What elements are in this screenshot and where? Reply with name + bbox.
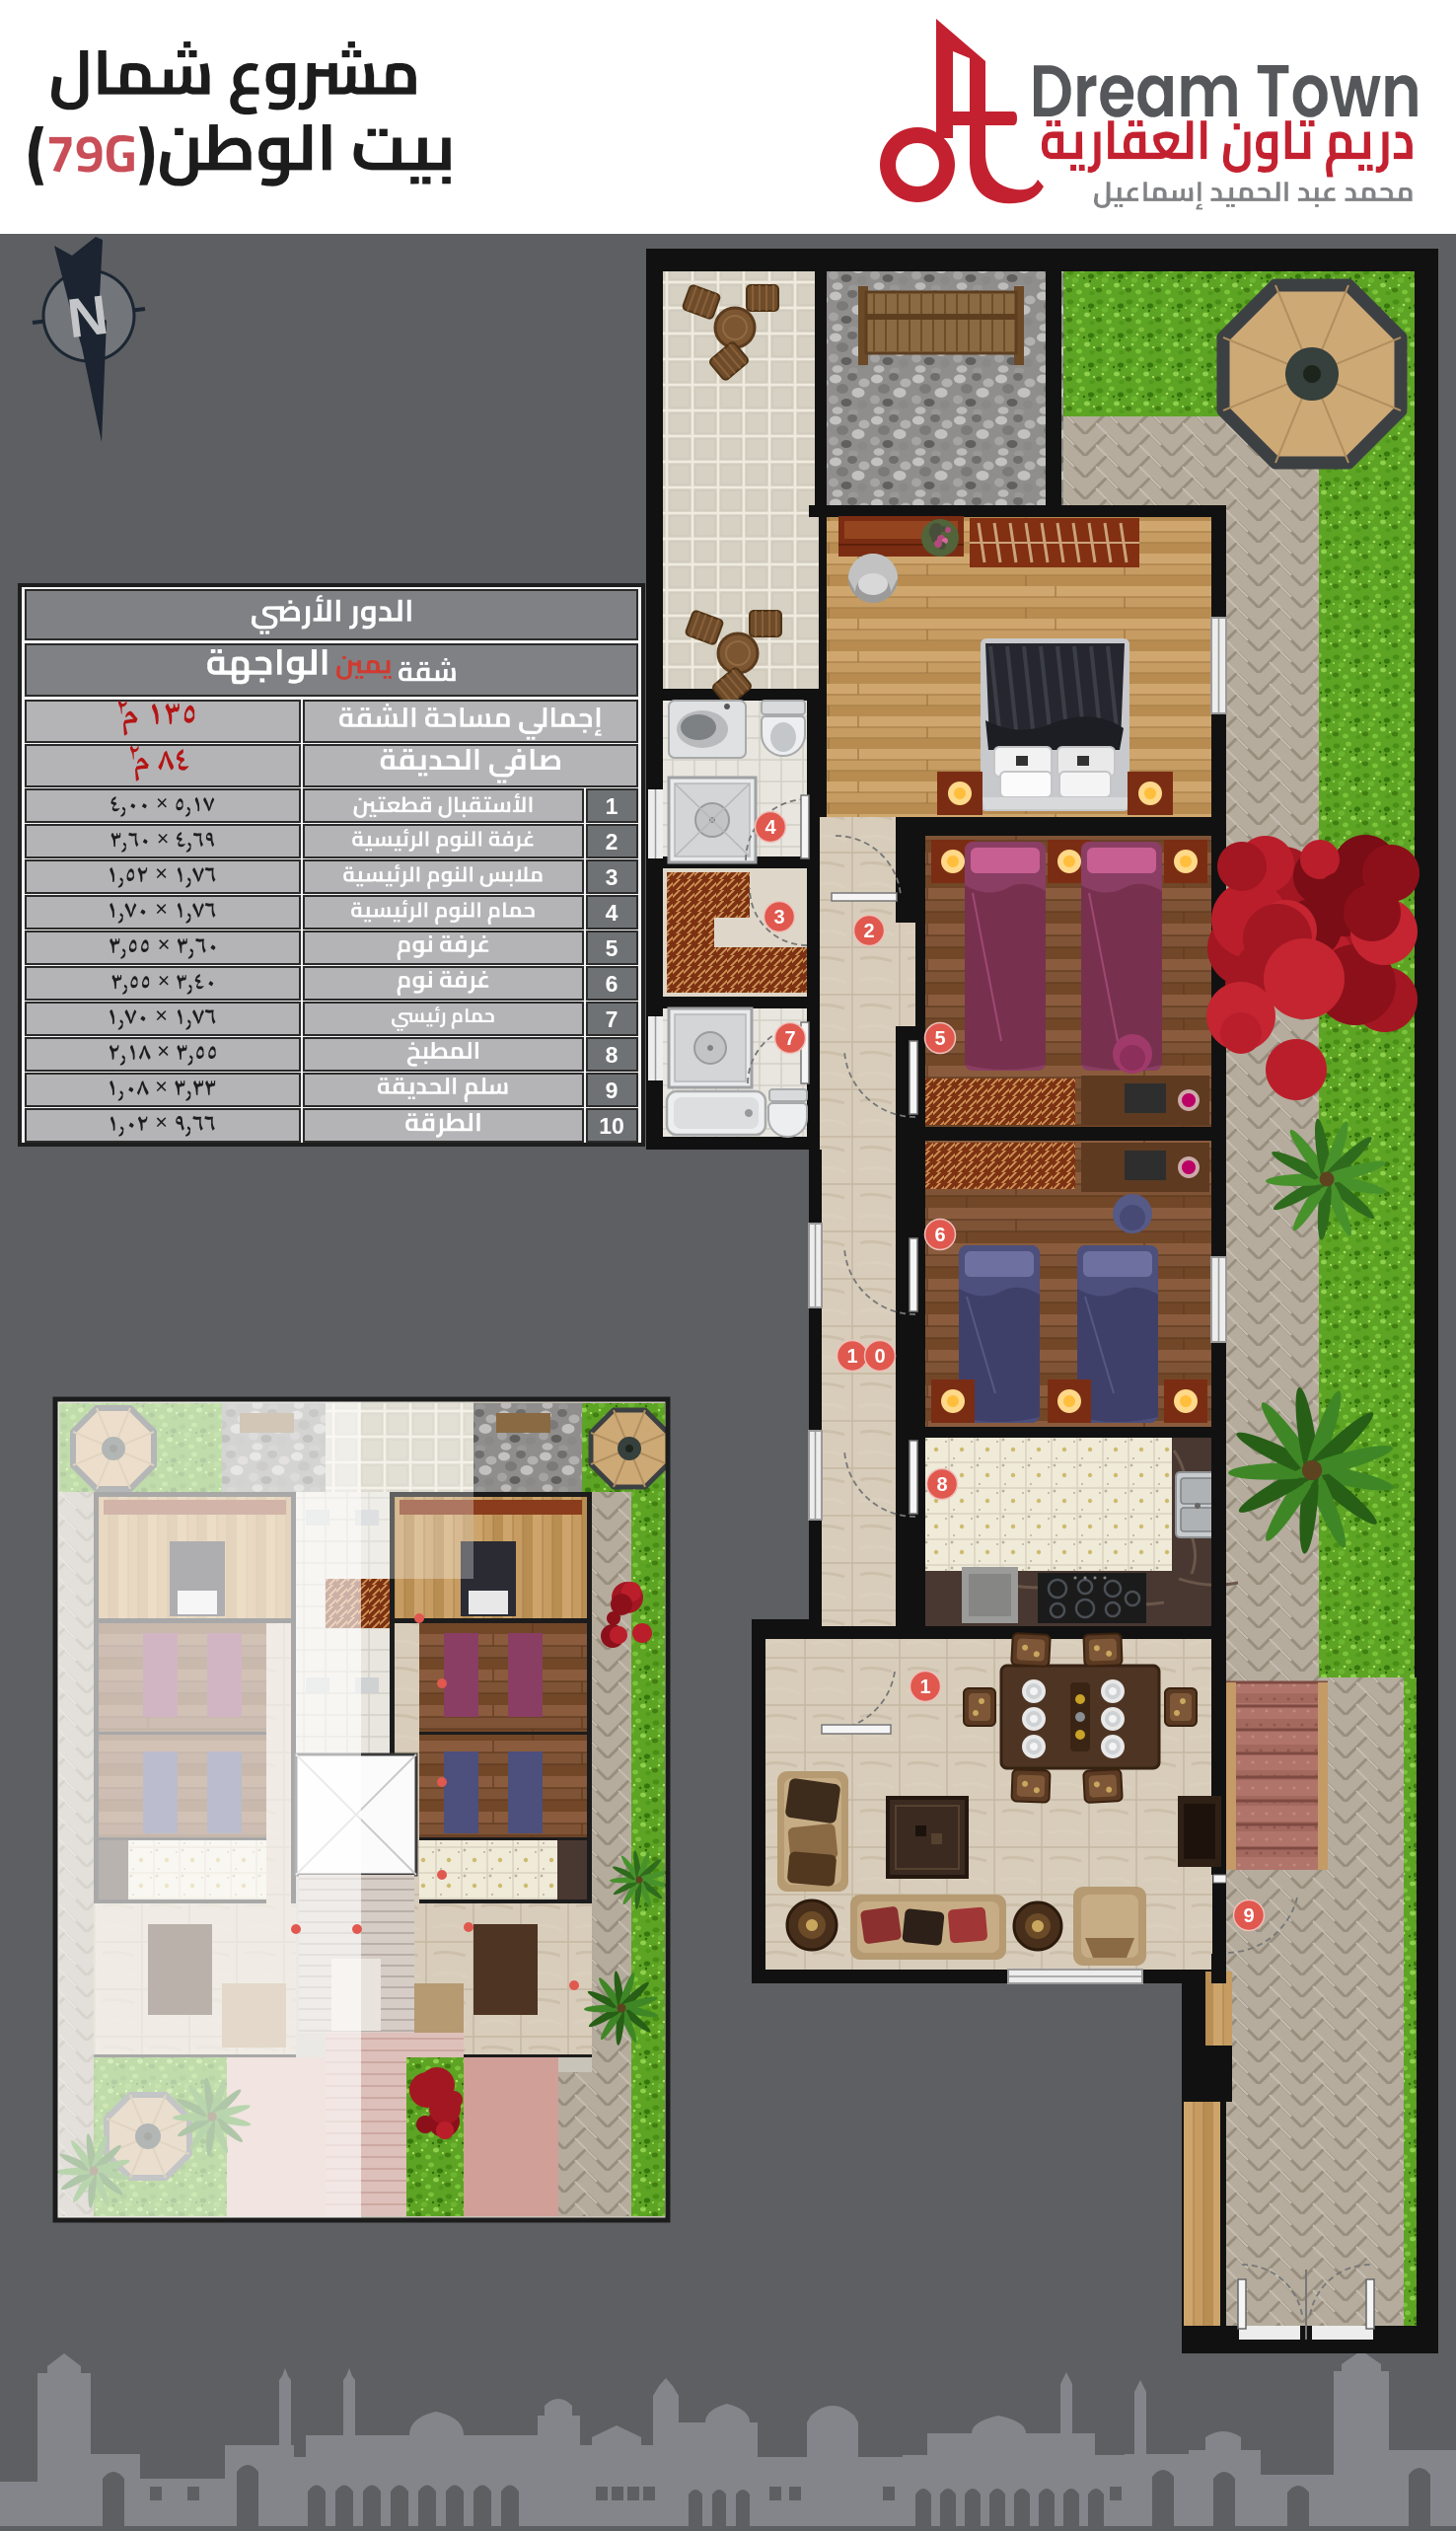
svg-text:8: 8 — [936, 1474, 947, 1496]
svg-text:3: 3 — [773, 907, 784, 929]
svg-text:6: 6 — [606, 971, 619, 997]
svg-text:0: 0 — [874, 1346, 885, 1368]
svg-text:1: 1 — [846, 1346, 857, 1368]
svg-text:2: 2 — [606, 829, 619, 855]
svg-text:9: 9 — [606, 1078, 619, 1103]
svg-text:5: 5 — [934, 1028, 945, 1050]
svg-text:8: 8 — [606, 1042, 619, 1068]
svg-text:5: 5 — [606, 935, 619, 961]
svg-text:1: 1 — [606, 793, 619, 819]
svg-text:2: 2 — [863, 921, 874, 942]
svg-text:6: 6 — [934, 1225, 945, 1246]
svg-text:9: 9 — [1243, 1905, 1254, 1927]
svg-text:10: 10 — [599, 1113, 624, 1139]
svg-text:4: 4 — [606, 900, 619, 926]
svg-text:1: 1 — [919, 1676, 930, 1698]
svg-text:7: 7 — [606, 1006, 619, 1032]
svg-text:7: 7 — [784, 1028, 795, 1050]
svg-text:4: 4 — [764, 817, 776, 839]
svg-text:3: 3 — [606, 864, 619, 890]
svg-text:N: N — [64, 283, 111, 349]
